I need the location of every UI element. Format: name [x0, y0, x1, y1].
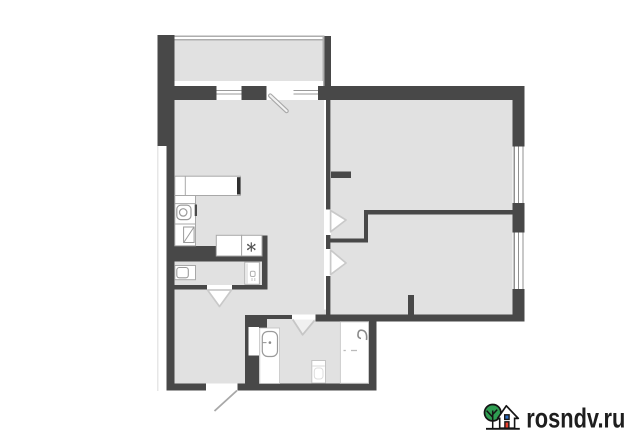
svg-text:rosndv.ru: rosndv.ru [526, 403, 625, 434]
